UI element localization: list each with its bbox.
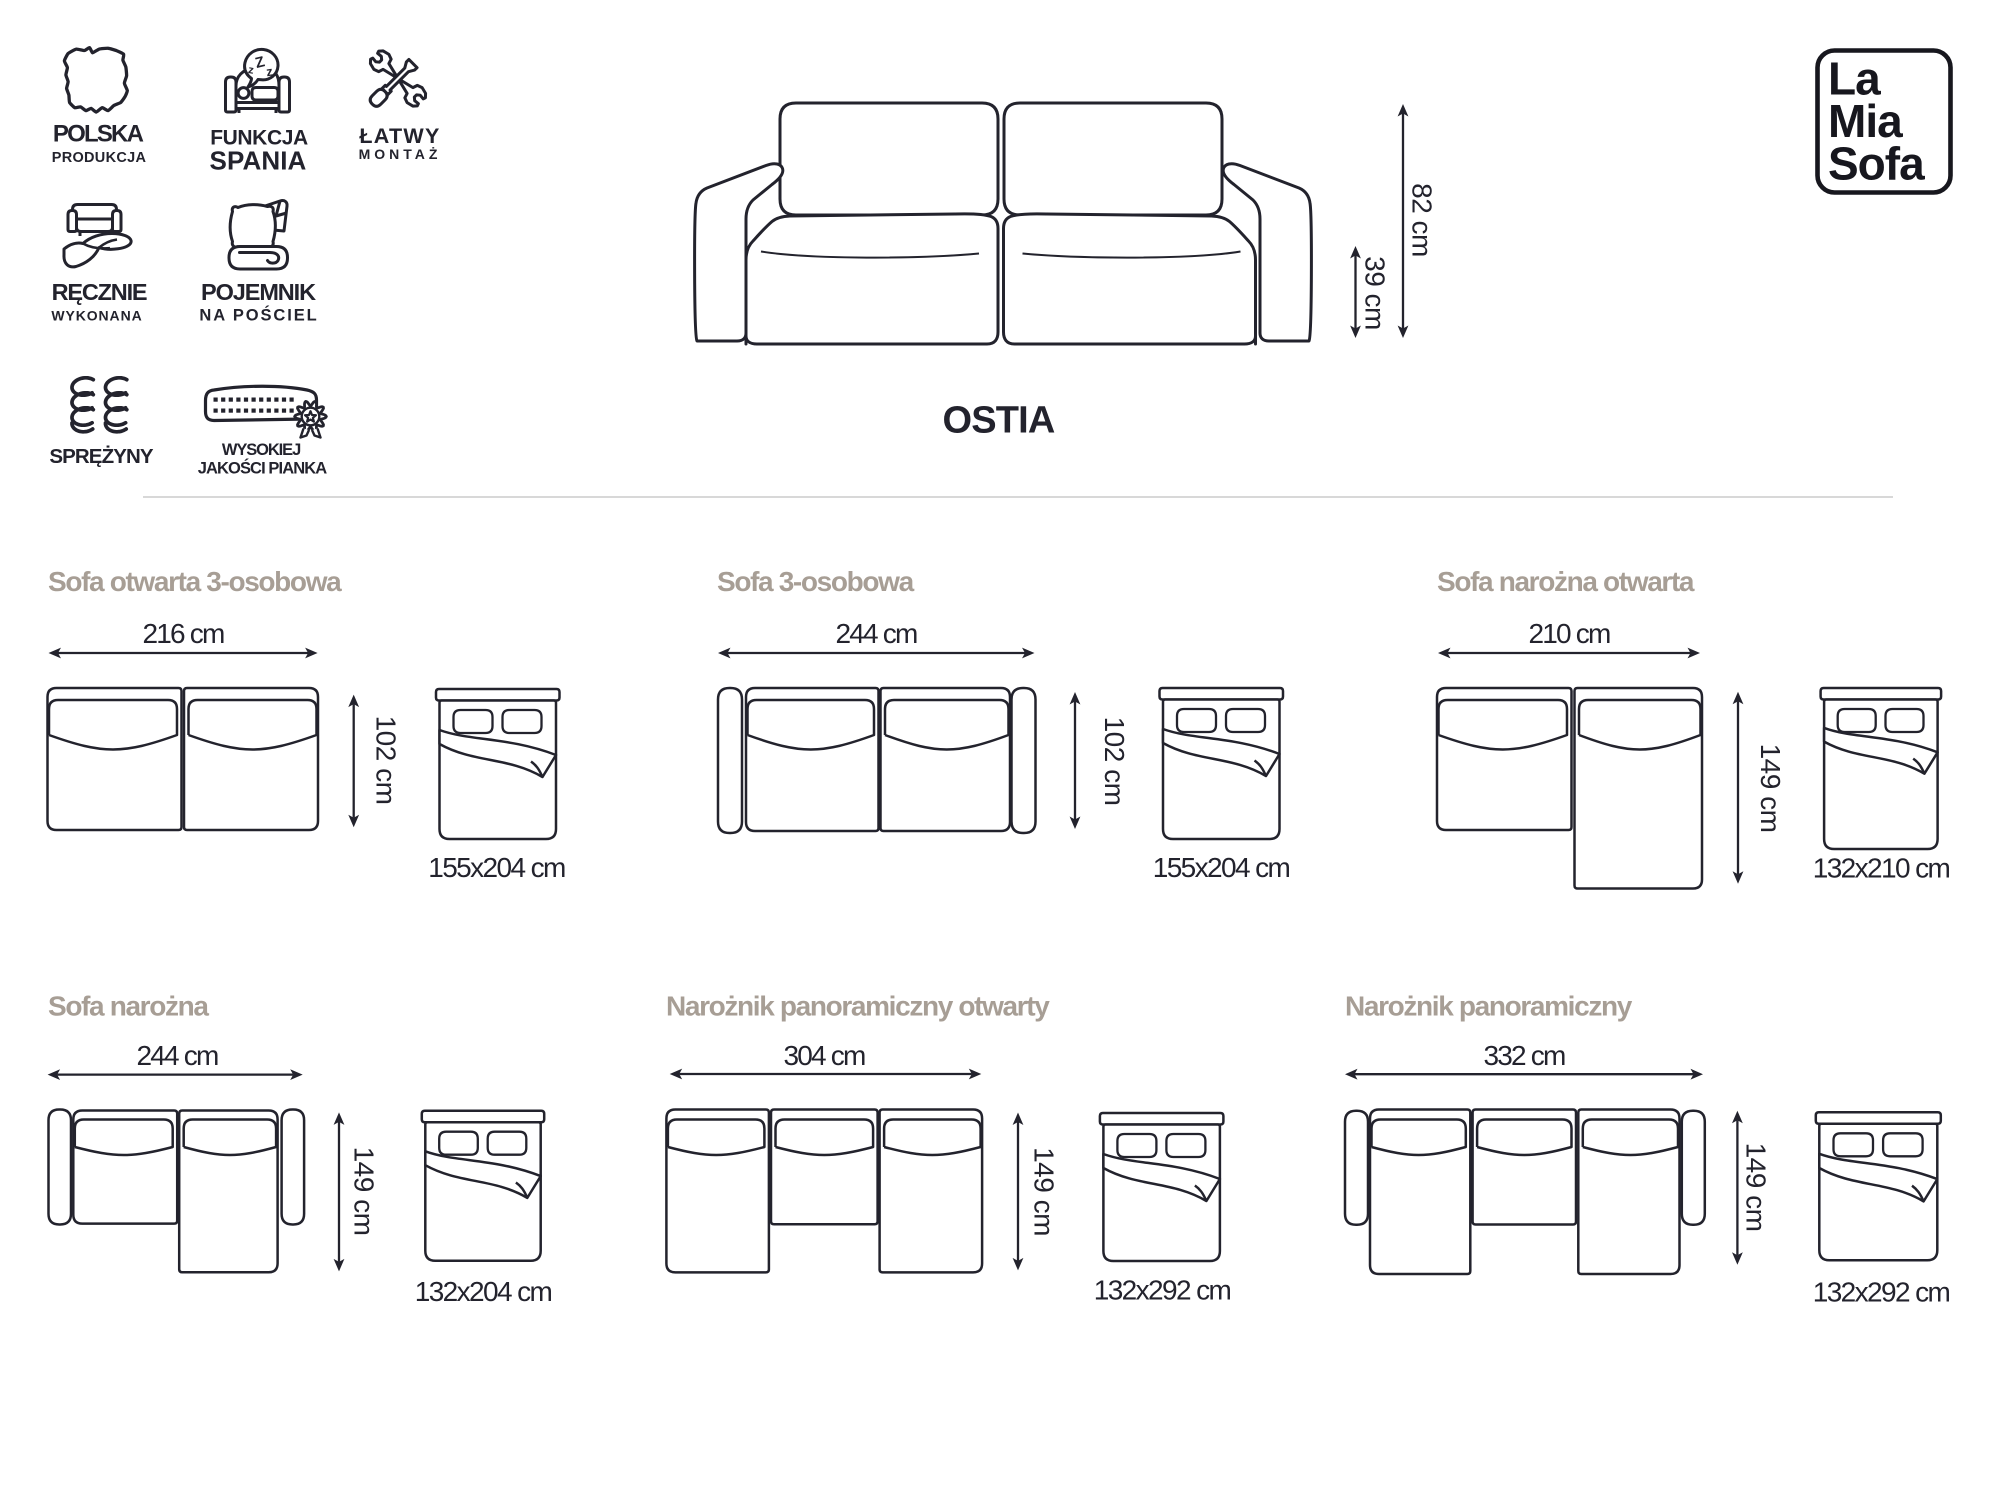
svg-text:132x292 cm: 132x292 cm [1094,1275,1231,1306]
svg-text:POJEMNIK: POJEMNIK [201,279,316,305]
svg-text:155x204 cm: 155x204 cm [428,852,565,883]
svg-text:SPANIA: SPANIA [210,146,307,176]
svg-text:Sofa otwarta 3-osobowa: Sofa otwarta 3-osobowa [48,566,342,597]
svg-text:Narożnik panoramiczny: Narożnik panoramiczny [1345,991,1633,1022]
svg-text:244 cm: 244 cm [835,618,916,649]
svg-text:155x204 cm: 155x204 cm [1153,852,1290,883]
svg-text:Sofa: Sofa [1828,138,1925,190]
svg-text:Narożnik panoramiczny otwarty: Narożnik panoramiczny otwarty [666,991,1050,1022]
svg-text:102 cm: 102 cm [371,716,402,805]
svg-text:Sofa narożna: Sofa narożna [48,991,209,1022]
svg-text:MONTAŻ: MONTAŻ [359,146,442,162]
svg-text:Sofa 3-osobowa: Sofa 3-osobowa [717,566,915,597]
svg-text:102 cm: 102 cm [1099,717,1130,806]
svg-text:149 cm: 149 cm [348,1147,379,1236]
svg-text:WYKONANA: WYKONANA [51,308,142,324]
svg-text:149 cm: 149 cm [1028,1147,1059,1236]
svg-text:132x292 cm: 132x292 cm [1813,1277,1950,1308]
svg-text:PRODUKCJA: PRODUKCJA [52,150,147,166]
svg-text:82 cm: 82 cm [1406,183,1437,257]
svg-text:132x204 cm: 132x204 cm [415,1276,552,1307]
svg-text:RĘCZNIE: RĘCZNIE [52,279,147,305]
svg-text:244 cm: 244 cm [136,1040,217,1071]
svg-text:39 cm: 39 cm [1359,256,1390,330]
svg-text:149 cm: 149 cm [1755,744,1786,833]
svg-text:210 cm: 210 cm [1528,618,1609,649]
svg-text:149 cm: 149 cm [1740,1143,1771,1232]
svg-text:304 cm: 304 cm [783,1040,864,1071]
svg-text:216 cm: 216 cm [142,618,223,649]
svg-text:Sofa narożna otwarta: Sofa narożna otwarta [1437,566,1695,597]
svg-text:SPRĘŻYNY: SPRĘŻYNY [49,445,154,468]
svg-text:332 cm: 332 cm [1483,1040,1564,1071]
svg-text:POLSKA: POLSKA [53,121,144,148]
svg-text:NA POŚCIEL: NA POŚCIEL [199,306,318,325]
svg-text:OSTIA: OSTIA [942,400,1054,442]
svg-text:132x210 cm: 132x210 cm [1813,853,1950,884]
svg-text:WYSOKIEJ: WYSOKIEJ [222,441,301,459]
svg-text:ŁATWY: ŁATWY [359,124,440,148]
svg-text:JAKOŚCI PIANKA: JAKOŚCI PIANKA [198,459,328,478]
